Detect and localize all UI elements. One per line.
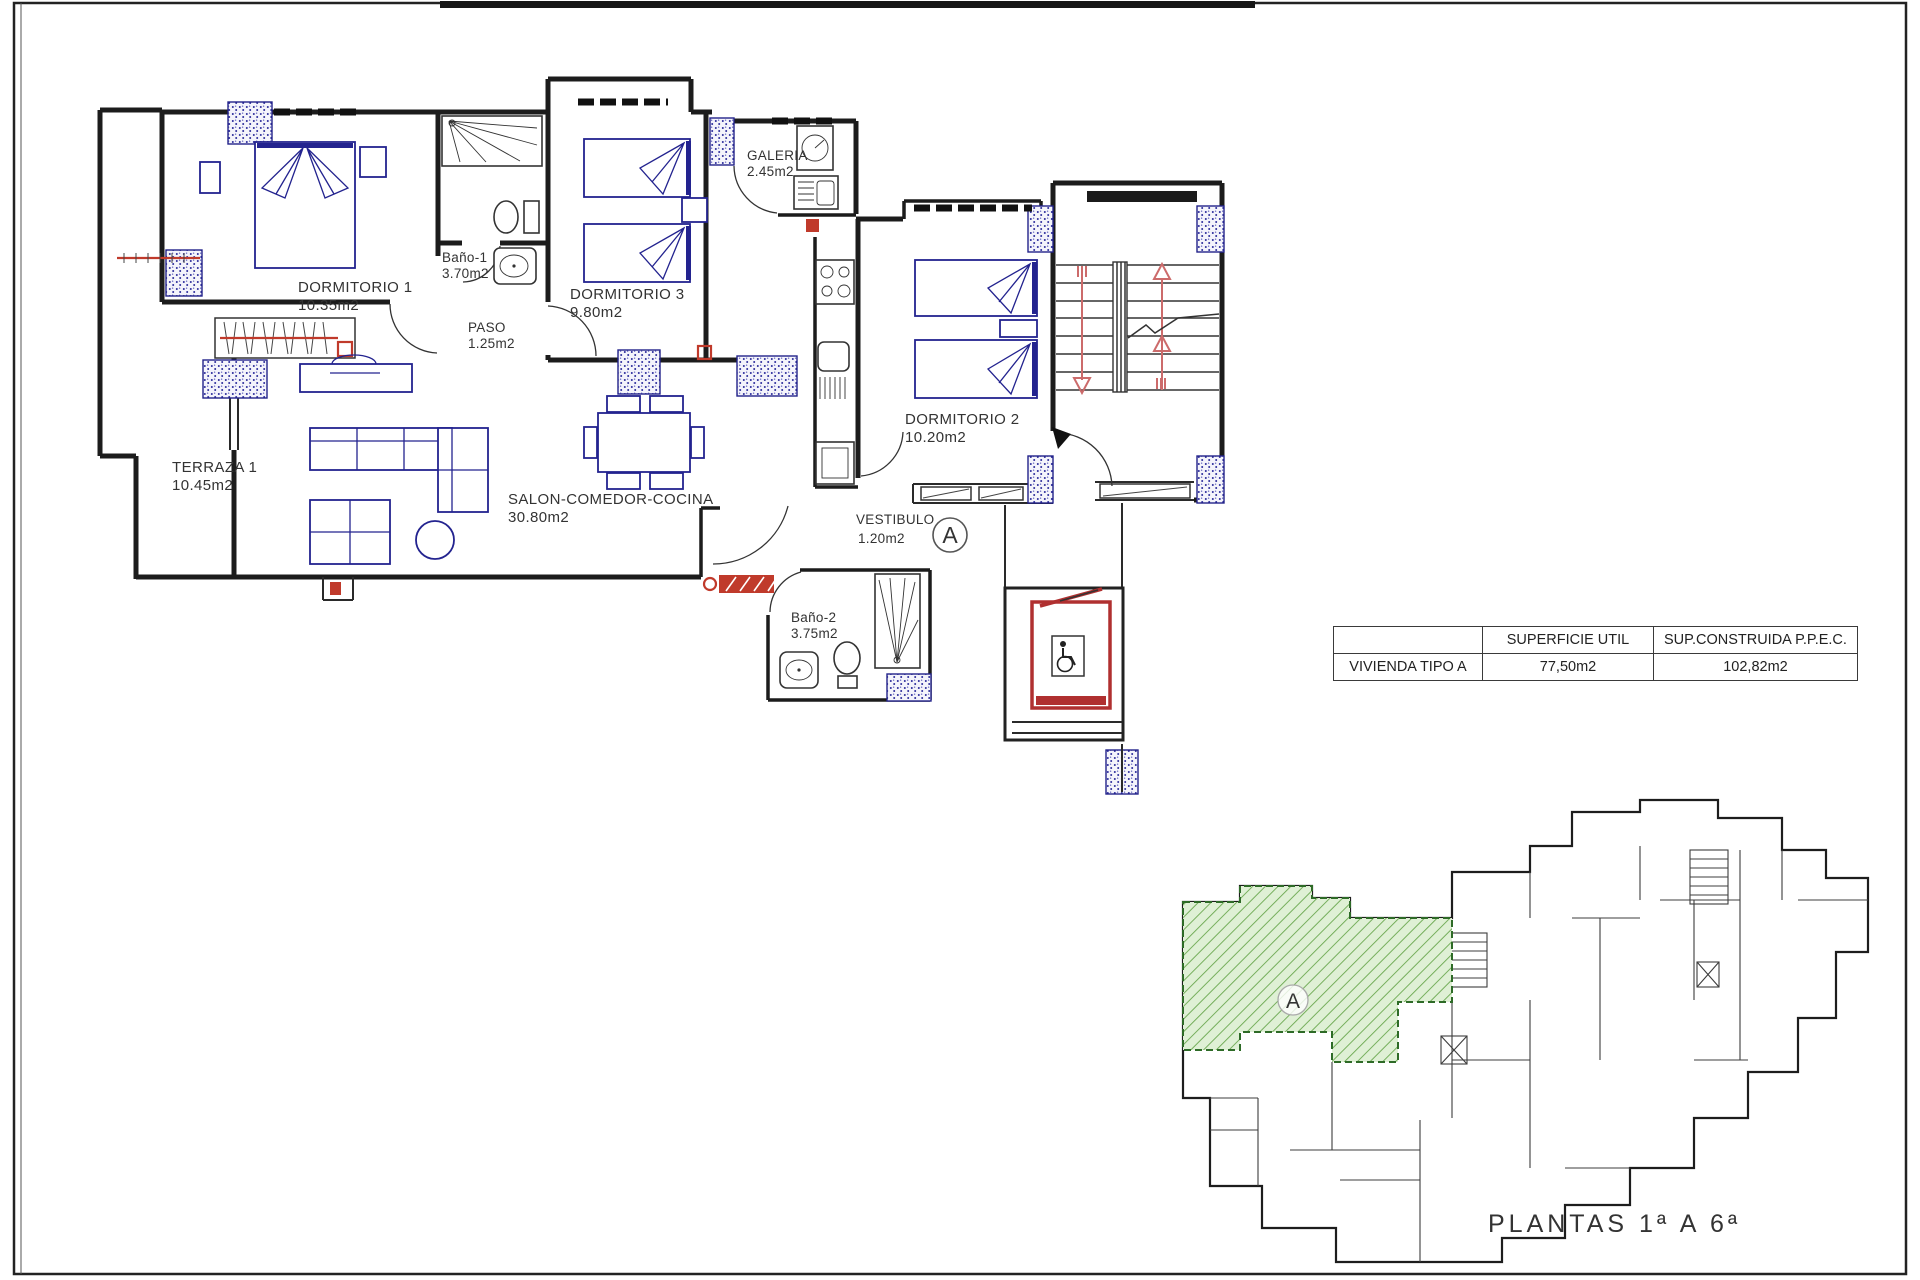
nightstand-icon [682,198,707,222]
key-plan: A PLANTAS 1ª A 6ª [1183,800,1868,1262]
dormitorio-2-furniture [915,260,1037,398]
radiator-icon [704,575,776,593]
fridge-icon [816,442,854,484]
kitchen-appliances [816,260,854,484]
apartment-plan: A DORMITORIO 1 10.35m2 Baño-1 3.70m2 PAS… [100,79,1224,794]
toilet-icon [494,201,539,233]
door-dormitorio-1 [390,304,437,353]
dormitorio-3-furniture [584,139,711,359]
laundry-sink-icon [794,176,838,209]
room-area-paso: 1.25m2 [468,336,515,351]
header-sup-construida: SUP.CONSTRUIDA P.P.E.C. [1654,627,1858,654]
window-vestibulo [921,484,1190,500]
room-label-bano-1: Baño-1 [442,250,487,265]
cell-vivienda-tipo: VIVIENDA TIPO A [1334,654,1483,681]
room-area-bano-1: 3.70m2 [442,266,489,281]
room-area-terraza-1: 10.45m2 [172,477,233,494]
double-bed-icon [255,142,355,268]
room-area-dormitorio-2: 10.20m2 [905,429,966,446]
room-label-galeria: GALERIA [747,148,808,163]
door-entrance [1058,433,1112,486]
room-label-dormitorio-3: DORMITORIO 3 [570,286,685,303]
room-label-vestibulo: VESTIBULO [856,512,934,527]
sideboard-icon [300,355,412,392]
coffee-table-icon [416,521,454,559]
key-plan-unit-label: A [1286,990,1300,1013]
sink-icon [780,652,818,688]
entrance-arrow-icon [1052,427,1071,449]
room-label-salon: SALON-COMEDOR-COCINA [508,491,714,508]
stove-icon [816,260,854,304]
cell-sup-construida: 102,82m2 [1654,654,1858,681]
section-marker: A [933,518,967,552]
room-label-paso: PASO [468,320,506,335]
room-label-dormitorio-1: DORMITORIO 1 [298,279,413,296]
door-salon-vestibulo [713,506,788,564]
wardrobe-icon [215,318,355,358]
table-row: VIVIENDA TIPO A 77,50m2 102,82m2 [1334,654,1858,681]
room-label-bano-2: Baño-2 [791,610,836,625]
room-label-dormitorio-2: DORMITORIO 2 [905,411,1020,428]
shower-icon [442,116,542,166]
nightstand-icon [360,147,386,177]
kitchen-sink-icon [818,342,849,399]
door-bano-2 [770,572,801,612]
single-bed-icon [915,340,1037,398]
room-area-bano-2: 3.75m2 [791,626,838,641]
toilet-icon [834,642,860,688]
single-bed-icon [915,260,1037,316]
sink-icon [494,248,536,284]
boiler-icon [806,219,819,232]
shower-icon [875,574,920,668]
radiator-icon [330,582,341,595]
room-area-dormitorio-3: 9.80m2 [570,304,622,321]
stairwell [1056,262,1219,393]
room-label-terraza-1: TERRAZA 1 [172,459,257,476]
area-summary-table: SUPERFICIE UTIL SUP.CONSTRUIDA P.P.E.C. … [1333,626,1858,681]
sofa-icon [310,428,488,564]
key-plan-caption: PLANTAS 1ª A 6ª [1488,1210,1741,1238]
nightstand-icon [1000,320,1037,337]
room-area-dormitorio-1: 10.35m2 [298,297,359,314]
wheelchair-icon [1052,636,1084,676]
dining-table-icon [584,396,704,489]
room-area-salon: 30.80m2 [508,509,569,526]
header-superficie-util: SUPERFICIE UTIL [1483,627,1654,654]
table-header-row: SUPERFICIE UTIL SUP.CONSTRUIDA P.P.E.C. [1334,627,1858,654]
top-border-band [440,1,1255,8]
door-dormitorio-2 [861,432,903,476]
window-stairwell [1087,191,1197,202]
section-marker-label: A [942,522,958,548]
nightstand-icon [200,162,220,193]
room-area-vestibulo: 1.20m2 [858,531,905,546]
cell-superficie-util: 77,50m2 [1483,654,1654,681]
drawing-sheet: A DORMITORIO 1 10.35m2 Baño-1 3.70m2 PAS… [0,0,1920,1280]
header-empty-cell [1334,627,1483,654]
room-area-galeria: 2.45m2 [747,164,794,179]
